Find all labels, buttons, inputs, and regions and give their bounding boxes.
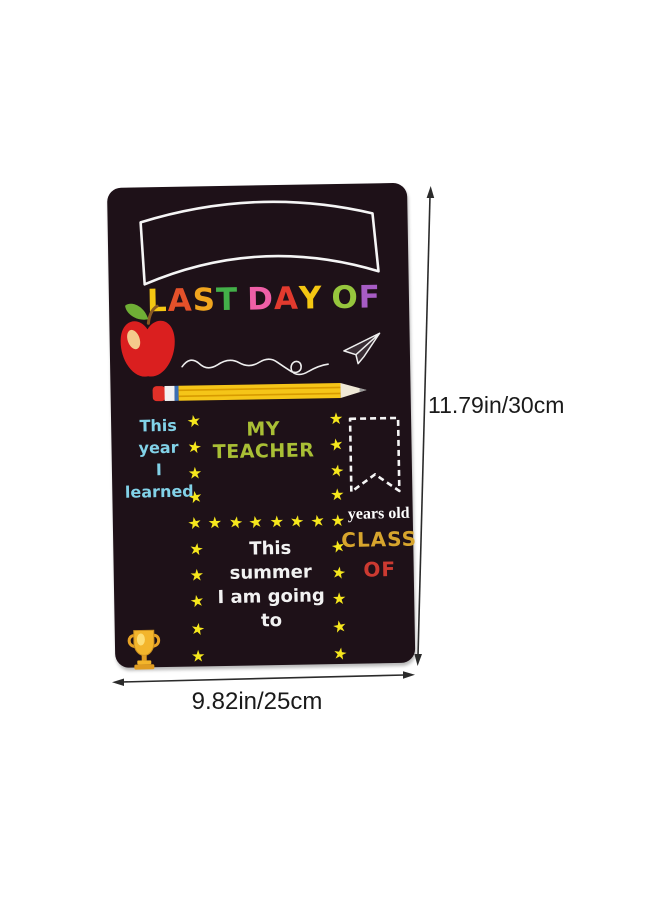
squiggle-line-icon [182,358,328,377]
star-icon: ★ [189,648,207,664]
star-icon: ★ [206,515,224,531]
height-dimension-arrow [414,186,434,666]
title-letter: D [247,281,274,317]
title-letter: Y [299,280,323,316]
star-icon: ★ [245,513,266,532]
height-dimension-label: 11.79in/30cm [428,392,564,419]
star-icon: ★ [327,411,345,427]
this-summer-label: This summer I am going to [205,536,337,634]
title-letter: F [358,279,381,315]
this-year-label: This year I learned [121,414,197,503]
title-letter: S [192,282,216,318]
this-year-line1: This year [121,414,196,459]
title-letter: A [274,281,300,317]
summer-line1: This summer [205,536,336,586]
star-icon: ★ [327,462,347,481]
paper-plane-icon [344,333,381,364]
star-icon: ★ [187,592,208,611]
pencil-icon [152,379,374,405]
star-icon: ★ [268,514,286,530]
my-teacher-label: MY TEACHER [201,417,326,463]
star-icon: ★ [330,645,350,664]
bookmark-ribbon-icon [347,415,402,496]
title-letter: T [216,282,239,318]
trophy-icon [125,627,164,672]
title-letter: O [331,280,359,316]
width-dimension-label: 9.82in/25cm [147,688,367,716]
class-of-label-2: OF [341,557,417,582]
apple-icon [117,299,181,388]
width-dimension-arrow [112,671,415,686]
chalkboard: LASTDAYOF [107,183,415,668]
summer-line2: I am going to [206,584,337,634]
years-old-label: years old [341,505,417,524]
star-icon: ★ [326,435,347,454]
star-icon: ★ [226,513,246,532]
star-icon: ★ [328,487,346,503]
star-icon: ★ [287,512,307,531]
star-icon: ★ [188,620,208,639]
star-icon: ★ [307,512,328,531]
class-of-label: CLASS [341,527,417,552]
product-image: LASTDAYOF [0,0,660,900]
this-year-line2: I learned [122,458,197,503]
star-icon: ★ [185,514,206,533]
star-icon: ★ [186,540,206,559]
star-icon: ★ [188,567,206,583]
